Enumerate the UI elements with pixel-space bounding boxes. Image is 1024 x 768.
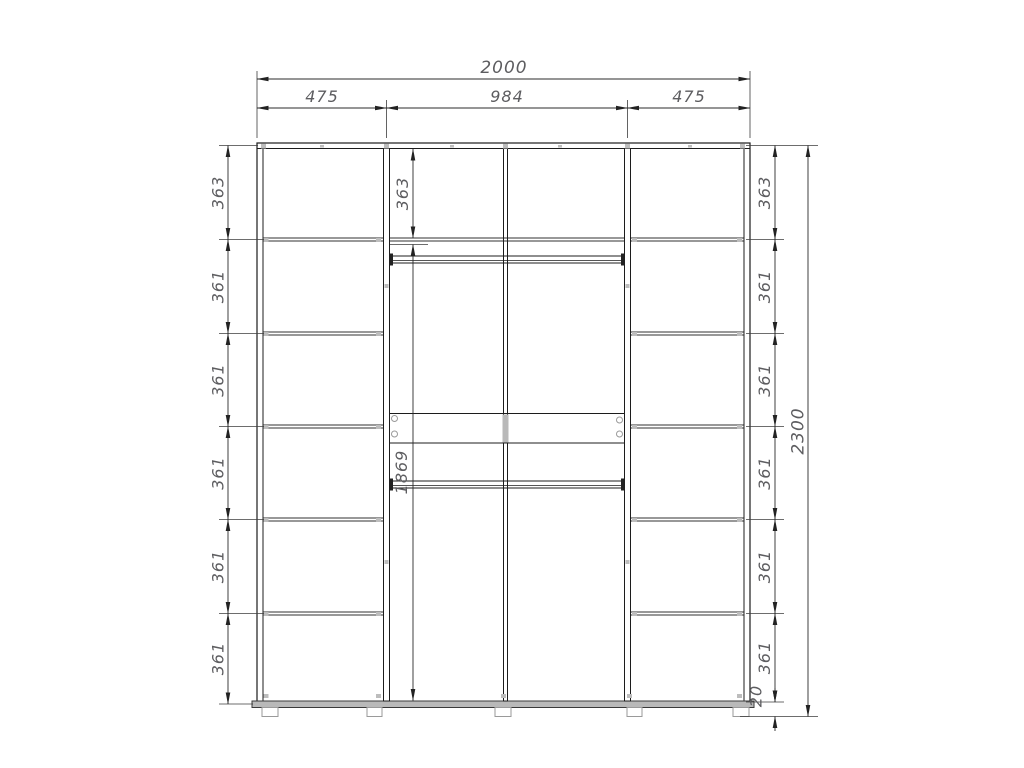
fitting-mark — [632, 425, 637, 429]
middle-connecting-band — [390, 414, 625, 444]
shelf — [263, 518, 384, 521]
dim-label-left-row-2: 361 — [209, 270, 228, 304]
fitting-mark — [385, 560, 389, 564]
fitting-mark — [376, 694, 381, 698]
fitting-mark — [264, 425, 269, 429]
shelf — [631, 425, 745, 428]
fitting-mark — [737, 238, 742, 242]
fitting-mark — [632, 332, 637, 336]
fitting-mark — [626, 284, 630, 288]
fitting-mark — [376, 238, 381, 242]
fitting-mark — [740, 144, 745, 149]
rail-bracket — [621, 254, 625, 266]
fitting-mark — [737, 612, 742, 616]
fitting-mark — [626, 560, 630, 564]
fitting-mark — [450, 145, 454, 148]
fitting-mark — [264, 612, 269, 616]
drawing-canvas: 2000 475 984 475 363 361 361 361 361 361… — [0, 0, 1024, 768]
shelf — [263, 332, 384, 335]
dim-label-middle-section: 984 — [490, 87, 524, 106]
dim-label-right-row-1: 363 — [755, 176, 774, 210]
dim-label-plinth: 20 — [747, 685, 766, 707]
dim-label-left-row-6: 361 — [209, 642, 228, 676]
band-divider-fill — [503, 415, 509, 443]
fitting-mark — [261, 144, 266, 149]
fitting-mark — [376, 332, 381, 336]
dim-label-left-section: 475 — [305, 87, 339, 106]
plinth-foot — [262, 708, 278, 717]
dim-label-left-row-1: 363 — [209, 176, 228, 210]
shelf — [263, 238, 384, 241]
shelf — [631, 238, 745, 241]
dim-label-left-row-3: 361 — [209, 363, 228, 397]
fitting-mark — [384, 144, 389, 149]
dim-label-right-row-3: 361 — [755, 363, 774, 397]
fitting-mark — [737, 694, 742, 698]
fitting-mark — [385, 284, 389, 288]
rail-bracket — [390, 254, 394, 266]
dim-label-overall-height: 2300 — [789, 407, 809, 454]
fitting-mark — [737, 518, 742, 522]
fitting-mark — [632, 238, 637, 242]
fitting-mark — [627, 694, 632, 698]
fitting-mark — [737, 332, 742, 336]
fitting-mark — [376, 425, 381, 429]
cam-fitting-icon — [617, 417, 623, 423]
left-section-shelves — [263, 238, 384, 615]
wardrobe-dimension-drawing: 2000 475 984 475 363 361 361 361 361 361… — [0, 0, 1024, 768]
dim-label-right-row-6: 361 — [755, 641, 774, 675]
plinth-foot — [733, 708, 749, 717]
fitting-mark — [625, 144, 630, 149]
shelf — [631, 518, 745, 521]
dim-label-right-row-2: 361 — [755, 270, 774, 304]
dim-label-right-section: 475 — [672, 87, 706, 106]
fitting-mark — [501, 694, 506, 698]
fitting-mark — [376, 518, 381, 522]
dimension-labels: 2000 475 984 475 363 361 361 361 361 361… — [209, 58, 809, 707]
dim-label-left-row-4: 361 — [209, 456, 228, 490]
cam-fitting-icon — [392, 416, 398, 422]
left-partition — [384, 149, 390, 702]
dim-label-middle-upper: 363 — [393, 177, 412, 211]
shelf — [631, 332, 745, 335]
right-section-shelves — [631, 238, 745, 615]
dim-label-right-row-4: 361 — [755, 456, 774, 490]
fitting-mark — [264, 518, 269, 522]
dim-label-overall-width: 2000 — [480, 58, 527, 78]
plinth-feet — [262, 708, 749, 717]
fitting-mark — [632, 518, 637, 522]
dim-label-right-row-5: 361 — [755, 550, 774, 584]
fitting-mark — [376, 612, 381, 616]
fitting-mark — [264, 332, 269, 336]
cam-fitting-icon — [617, 431, 623, 437]
fitting-mark — [737, 425, 742, 429]
plinth-foot — [627, 708, 642, 717]
dim-label-middle-lower: 1869 — [392, 450, 411, 495]
rail-bracket — [621, 479, 625, 491]
shelf — [631, 612, 745, 615]
plinth-foot — [367, 708, 382, 717]
dim-label-left-row-5: 361 — [209, 550, 228, 584]
fitting-mark — [320, 145, 324, 148]
extension-lines — [219, 71, 818, 717]
fitting-mark — [503, 144, 508, 149]
fitting-mark — [264, 694, 269, 698]
cabinet-structure — [252, 143, 754, 717]
bottom-panel — [252, 701, 754, 708]
shelf — [263, 612, 384, 615]
fitting-mark — [264, 238, 269, 242]
shelf — [263, 425, 384, 428]
fitting-mark — [688, 145, 692, 148]
cam-fitting-icon — [392, 431, 398, 437]
fitting-mark — [558, 145, 562, 148]
plinth-foot — [495, 708, 511, 717]
fitting-mark — [632, 612, 637, 616]
right-partition — [625, 149, 631, 702]
dimension-lines — [228, 79, 808, 731]
